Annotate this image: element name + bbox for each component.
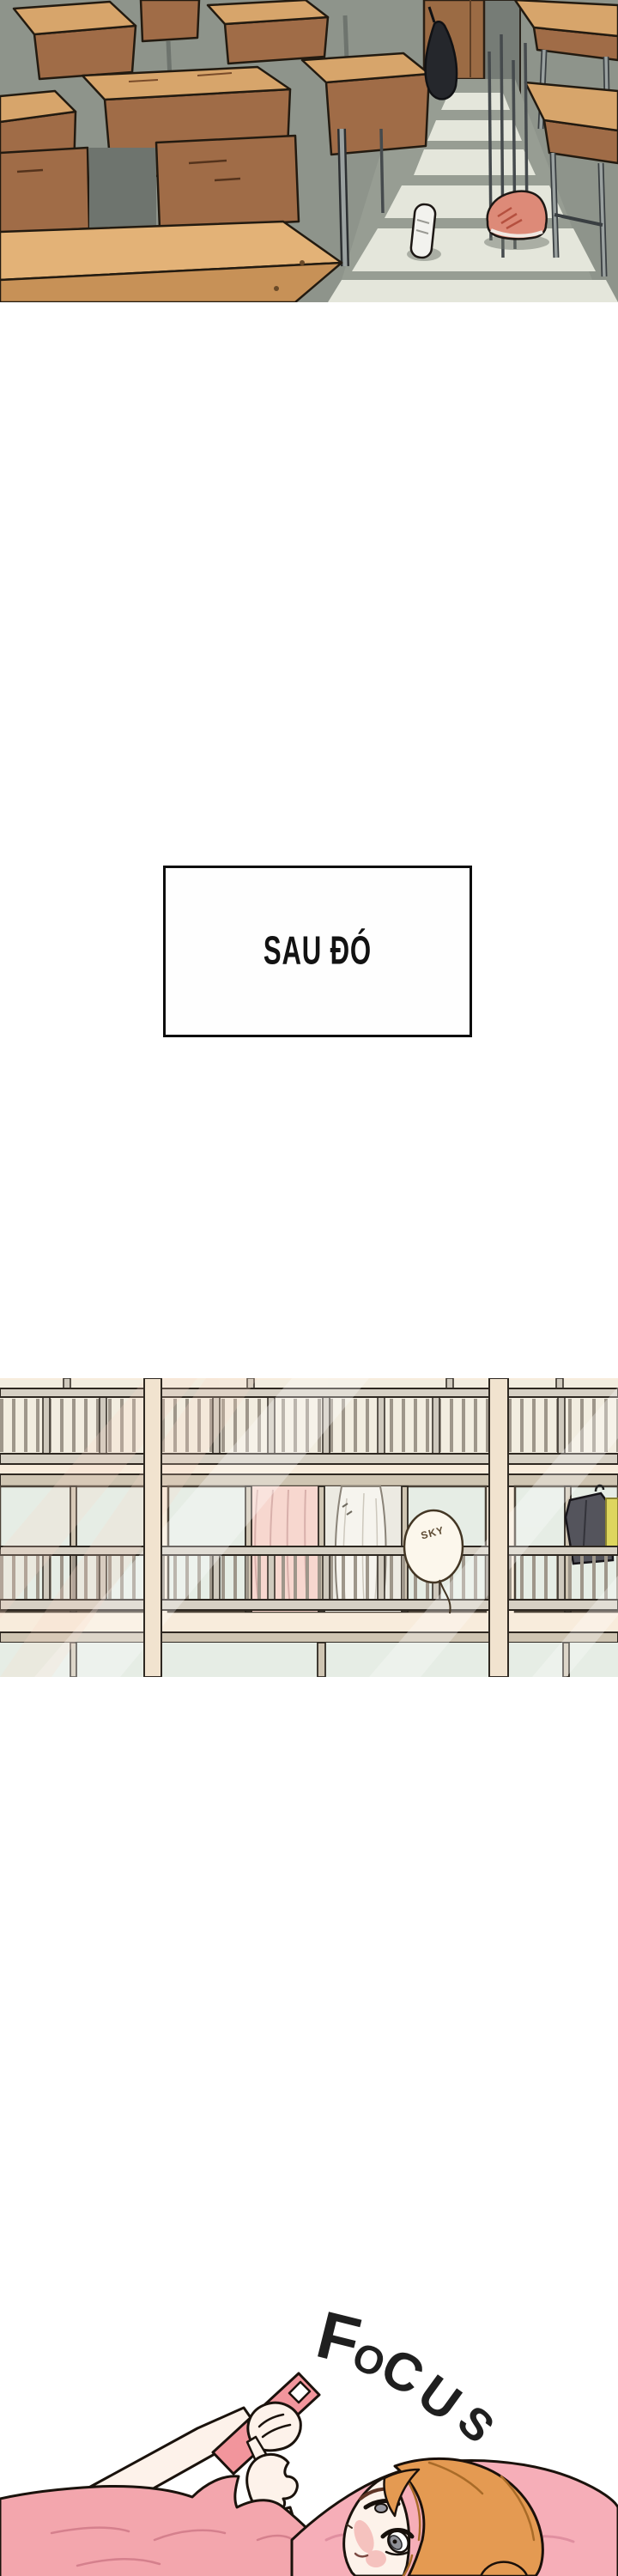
building-art: SKY bbox=[0, 1378, 618, 1677]
classroom-art bbox=[0, 0, 618, 302]
panel-classroom bbox=[0, 0, 618, 302]
comic-page: SAU ĐÓ bbox=[0, 0, 618, 2576]
yellow-shirt bbox=[606, 1498, 618, 1553]
panel-building: SKY bbox=[0, 1378, 618, 1677]
desk-row-near bbox=[0, 136, 342, 302]
caption-box: SAU ĐÓ bbox=[163, 866, 472, 1037]
foreground-desk-leg bbox=[342, 129, 345, 266]
caption-text: SAU ĐÓ bbox=[264, 929, 372, 974]
wall-divider-right bbox=[489, 1378, 508, 1677]
wall-divider-left bbox=[144, 1378, 161, 1677]
